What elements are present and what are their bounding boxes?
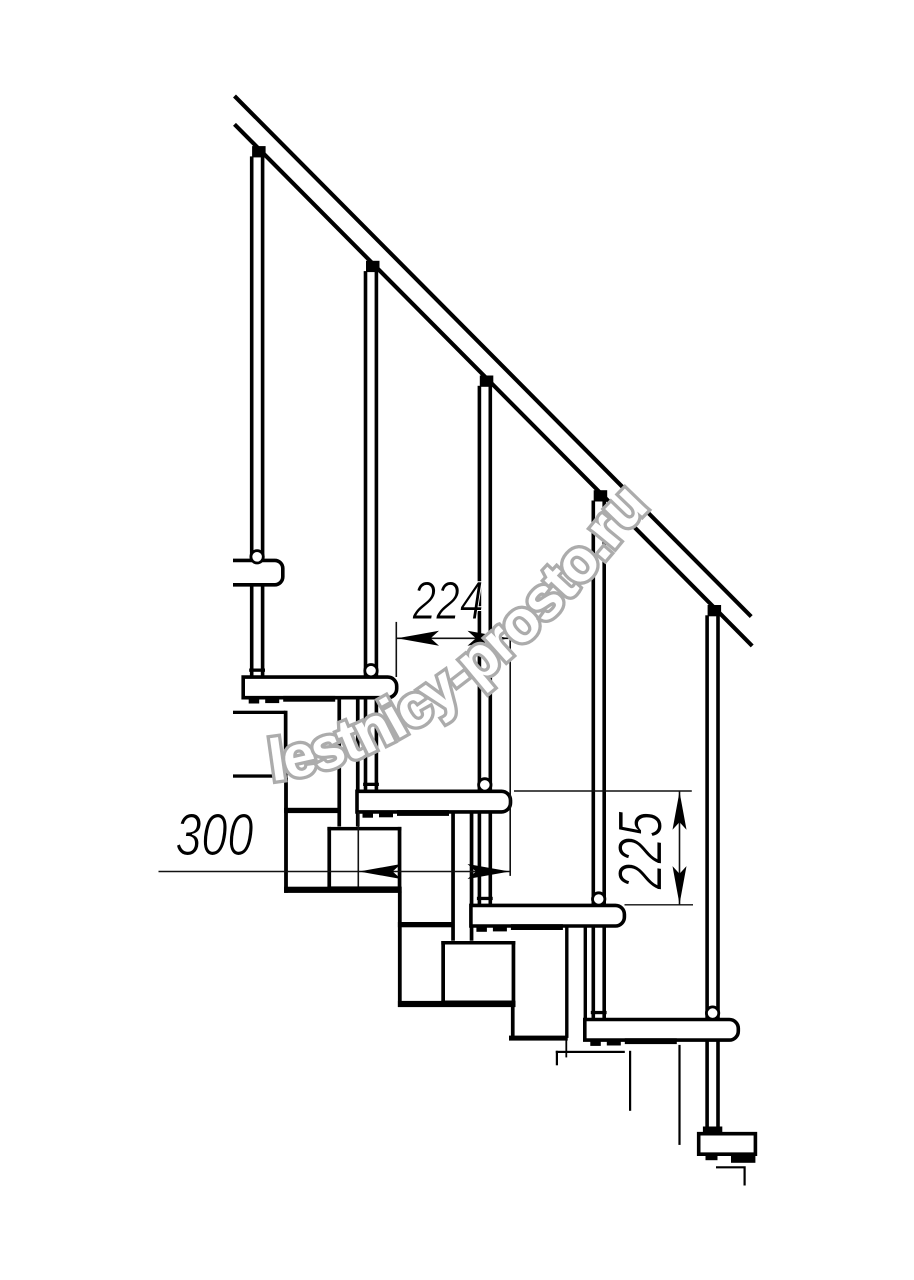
svg-text:225: 225 (607, 811, 676, 890)
svg-text:300: 300 (175, 802, 253, 868)
